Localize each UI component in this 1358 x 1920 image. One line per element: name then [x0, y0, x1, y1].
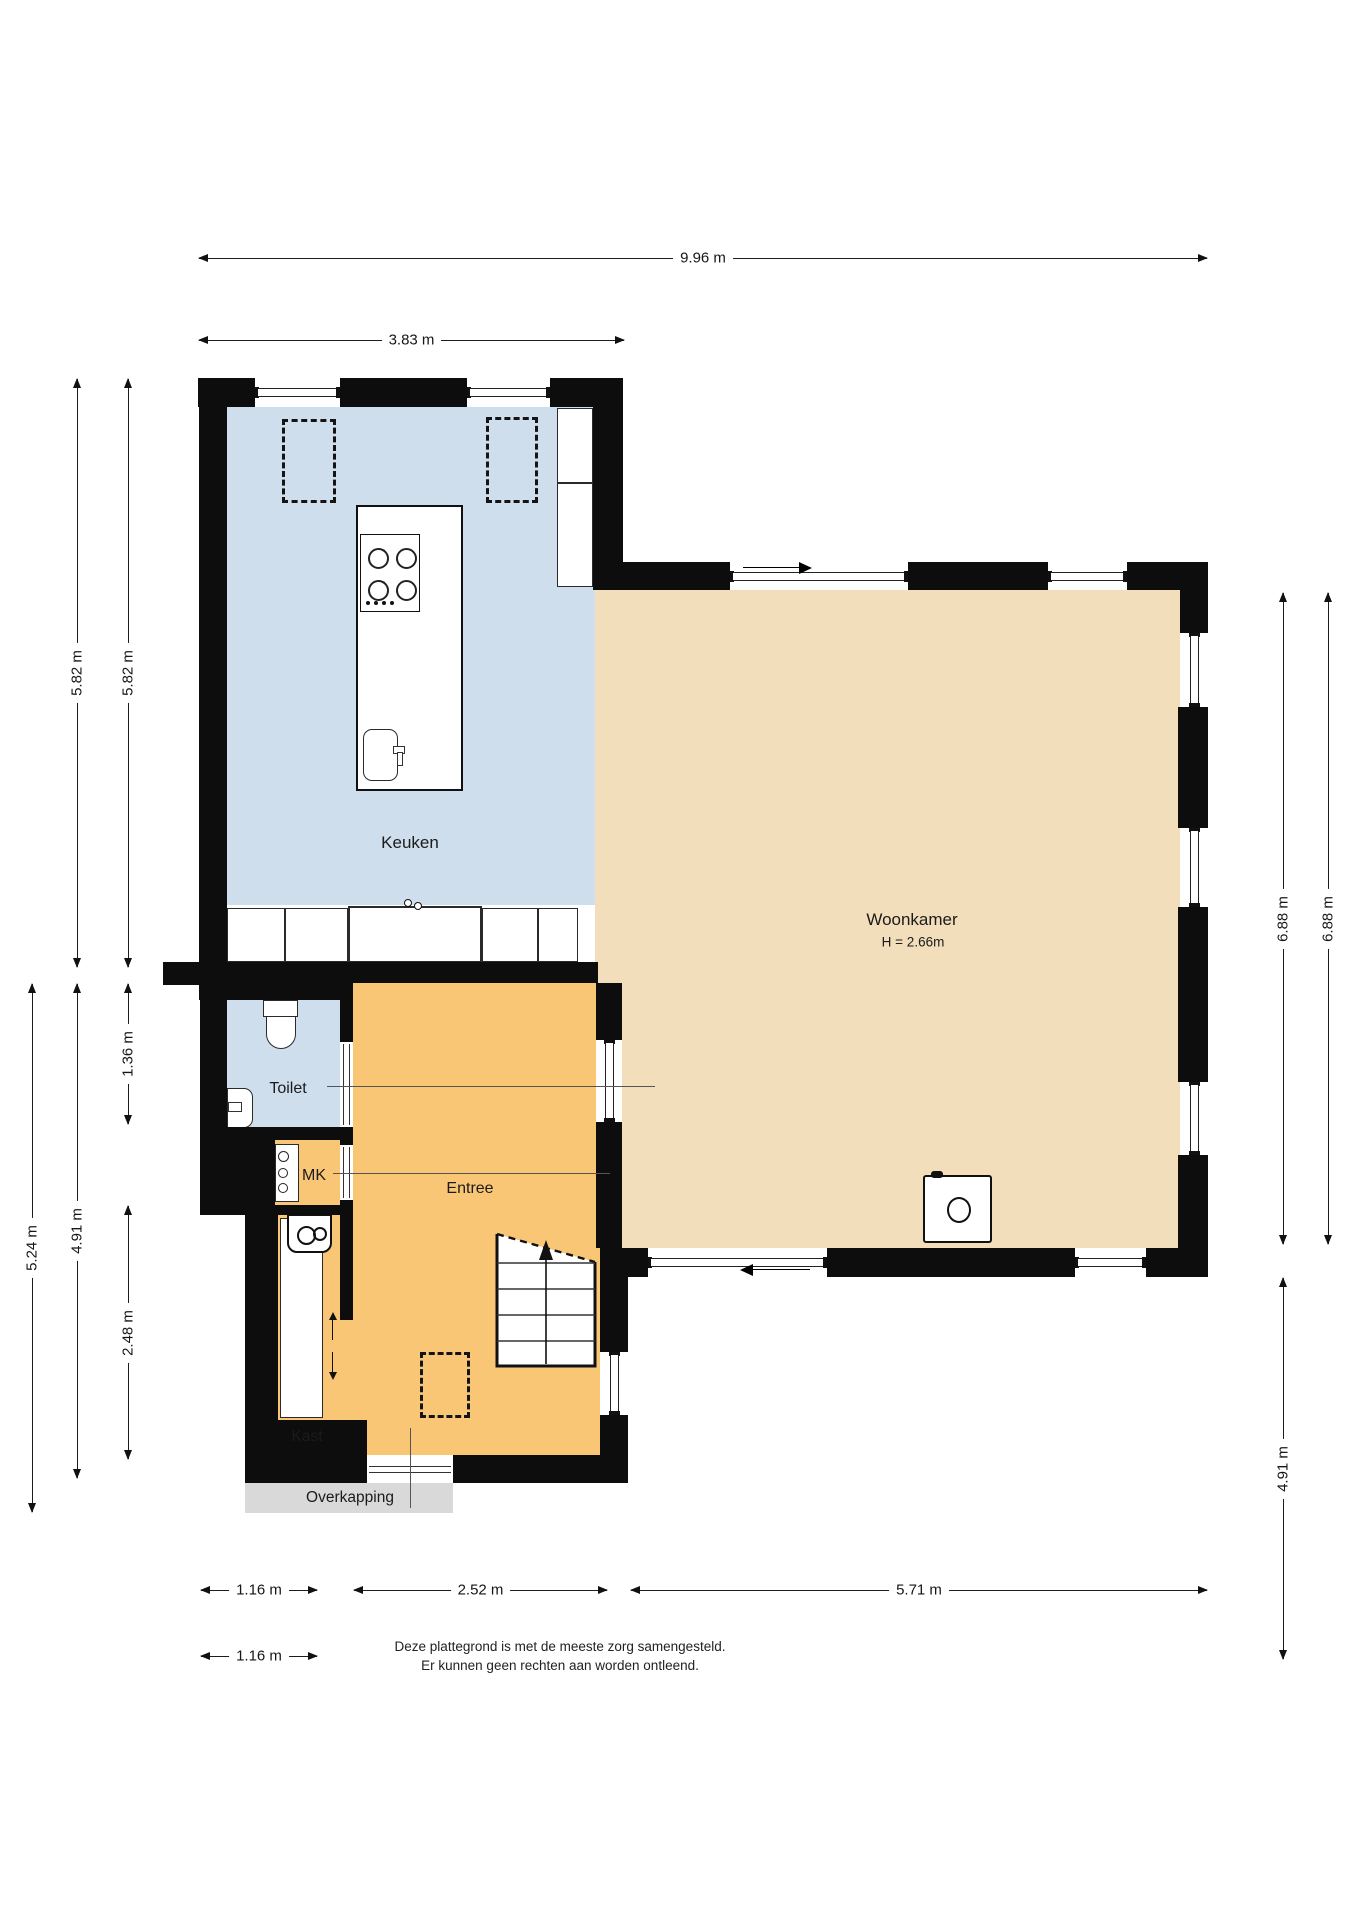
dimension-value: 4.91 m: [69, 1201, 86, 1261]
room-label-keuken: Keuken: [381, 833, 439, 853]
meter-dial-icon: [278, 1151, 289, 1162]
burner-icon: [396, 548, 417, 569]
dimension-value: 6.88 m: [1320, 889, 1337, 949]
wall-segment: [610, 1248, 648, 1277]
window: [600, 1352, 628, 1415]
kitchen-counter-cabinet: [482, 908, 538, 962]
skylight-dashed-right: [486, 417, 538, 503]
wall-segment: [340, 1000, 353, 1042]
dimension-value: 9.96 m: [673, 250, 733, 267]
window: [1180, 1082, 1208, 1155]
skylight-dashed-left: [282, 419, 336, 503]
dimension-left-block-outer: 5.24 m: [23, 983, 41, 1513]
meter-dial-icon: [278, 1168, 288, 1178]
wall-segment: [199, 983, 353, 1000]
kast-arrow-down-head-icon: [329, 1372, 337, 1380]
wall-segment: [1146, 1248, 1208, 1277]
dimension-value: 2.48 m: [120, 1303, 137, 1363]
wall-segment: [596, 983, 622, 1040]
entry-arrow-icon: [752, 1269, 810, 1270]
room-label-woonkamer: Woonkamer: [866, 910, 957, 930]
wall-segment: [199, 407, 227, 983]
room-label-woonkamer-height: H = 2.66m: [882, 935, 945, 950]
entry-arrow-head-icon: [799, 562, 812, 574]
cooktop-knob-icon: [382, 601, 386, 605]
window: [1180, 633, 1208, 707]
wall-segment: [908, 562, 1048, 590]
meter-dial-icon: [278, 1183, 288, 1193]
wall-segment: [340, 378, 467, 407]
cooktop-knob-icon: [390, 601, 394, 605]
kitchen-counter-sink-cabinet: [348, 906, 482, 963]
room-label-entree: Entree: [446, 1180, 493, 1198]
wall-segment: [596, 1122, 622, 1248]
window: [467, 378, 550, 407]
door-opening-toilet: [340, 1042, 353, 1127]
floor-kast-corridor: [340, 1320, 353, 1420]
dimension-value: 5.82 m: [120, 643, 137, 703]
kast-arrow-up-head-icon: [329, 1312, 337, 1320]
counter-faucet-icon: [414, 902, 422, 910]
dimension-left-kitchen-outer: 5.82 m: [68, 378, 86, 968]
wall-segment: [340, 1215, 353, 1320]
floorplan-canvas: Keuken Woonkamer H = 2.66m Toilet MK Ent…: [0, 0, 1358, 1920]
wall-segment: [245, 1205, 278, 1455]
wall-segment: [600, 1248, 610, 1277]
cooktop-knob-icon: [366, 601, 370, 605]
wall-segment: [199, 962, 598, 983]
wall-segment: [200, 1140, 275, 1205]
room-label-kast: Kast: [291, 1428, 322, 1446]
dimension-value: 3.83 m: [382, 332, 442, 349]
wood-stove-knob-icon: [931, 1171, 943, 1178]
cooktop-knob-icon: [374, 601, 378, 605]
disclaimer-line2: Er kunnen geen rechten aan worden ontlee…: [260, 1657, 860, 1676]
leader-line-overkapping: [410, 1428, 411, 1508]
dimension-value: 6.88 m: [1275, 889, 1292, 949]
window: [1048, 562, 1127, 590]
kitchen-counter-cabinet: [538, 908, 578, 962]
burner-icon: [396, 580, 417, 601]
entry-arrow-head-icon: [740, 1264, 753, 1276]
wall-segment: [600, 1277, 628, 1352]
burner-icon: [368, 548, 389, 569]
wood-stove-ring-icon: [947, 1197, 971, 1223]
wall-segment: [600, 1415, 628, 1483]
wall-segment: [200, 1000, 227, 1127]
leader-line-toilet: [327, 1086, 655, 1087]
dimension-value: 5.24 m: [24, 1218, 41, 1278]
dimension-left-kitchen-inner: 5.82 m: [119, 378, 137, 968]
wall-segment: [198, 378, 255, 407]
wall-segment: [1180, 590, 1208, 633]
dimension-left-toilet: 1.36 m: [119, 983, 137, 1125]
wall-segment: [1127, 562, 1208, 590]
sliding-door: [648, 1248, 827, 1277]
wall-segment: [593, 378, 623, 590]
dimension-value: 5.71 m: [889, 1582, 949, 1599]
wall-segment: [200, 1127, 353, 1140]
burner-icon: [368, 580, 389, 601]
dimension-value: 4.91 m: [1275, 1439, 1292, 1499]
disclaimer: Deze plattegrond is met de meeste zorg s…: [260, 1638, 860, 1676]
window: [255, 378, 340, 407]
window: [1180, 828, 1208, 907]
dimension-value: 1.16 m: [229, 1582, 289, 1599]
dimension-top-kitchen: 3.83 m: [198, 331, 625, 349]
island-sink: [363, 729, 398, 781]
staircase: [495, 1230, 599, 1368]
dimension-top-total: 9.96 m: [198, 249, 1208, 267]
toilet-cistern: [263, 1000, 298, 1017]
dimension-bottom-living: 5.71 m: [630, 1581, 1208, 1599]
wall-segment: [1178, 707, 1208, 828]
boiler-dial-icon: [313, 1227, 327, 1241]
wall-segment: [163, 962, 200, 985]
room-label-overkapping: Overkapping: [303, 1489, 397, 1507]
dimension-left-kast: 2.48 m: [119, 1205, 137, 1460]
entry-arrow-icon: [743, 567, 801, 568]
window: [1075, 1248, 1146, 1277]
island-faucet-icon: [397, 752, 403, 766]
disclaimer-line1: Deze plattegrond is met de meeste zorg s…: [260, 1638, 860, 1657]
toilet-sink-faucet-icon: [228, 1102, 242, 1112]
dimension-value: 5.82 m: [69, 643, 86, 703]
dimension-value: 2.52 m: [451, 1582, 511, 1599]
wall-segment: [1178, 907, 1208, 1082]
leader-line-mk: [333, 1173, 610, 1174]
wall-segment: [623, 562, 730, 590]
kitchen-appliance-cabinet: [557, 408, 593, 483]
wall-segment: [827, 1248, 1075, 1277]
kitchen-counter-cabinet: [285, 908, 348, 962]
room-label-toilet: Toilet: [266, 1080, 309, 1098]
toilet-bowl: [266, 1016, 296, 1049]
kitchen-appliance-cabinet: [557, 483, 593, 587]
dimension-value: 1.36 m: [120, 1024, 137, 1084]
dimension-right-living-outer: 6.88 m: [1274, 592, 1292, 1245]
room-label-mk: MK: [300, 1167, 328, 1185]
dimension-bottom-kast: 1.16 m: [200, 1581, 318, 1599]
dimension-right-lower: 4.91 m: [1274, 1277, 1292, 1660]
dimension-bottom-entree: 2.52 m: [353, 1581, 608, 1599]
dimension-right-living-inner: 6.88 m: [1319, 592, 1337, 1245]
kitchen-counter-cabinet: [227, 908, 285, 962]
dimension-left-block-inner: 4.91 m: [68, 983, 86, 1479]
counter-faucet-icon: [404, 899, 412, 907]
interior-window: [596, 1040, 622, 1122]
skylight-dashed-entree: [420, 1352, 470, 1418]
floor-entree: [353, 983, 600, 1455]
